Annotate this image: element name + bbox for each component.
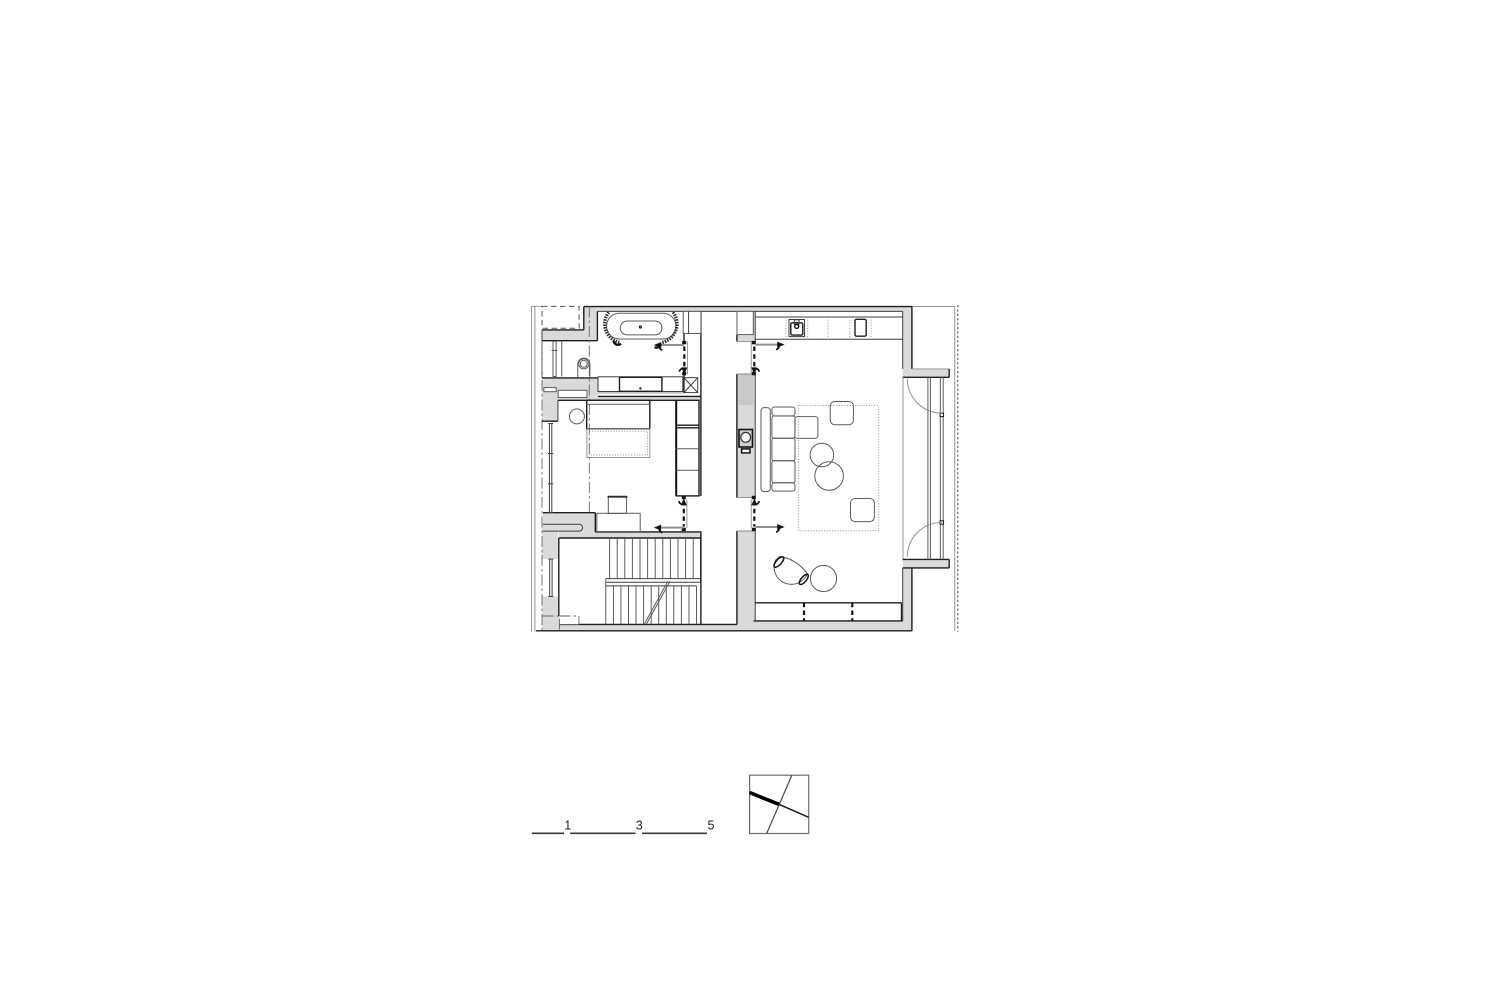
svg-text:5: 5 — [708, 819, 715, 833]
svg-text:3: 3 — [636, 819, 643, 833]
svg-text:1: 1 — [564, 819, 571, 833]
